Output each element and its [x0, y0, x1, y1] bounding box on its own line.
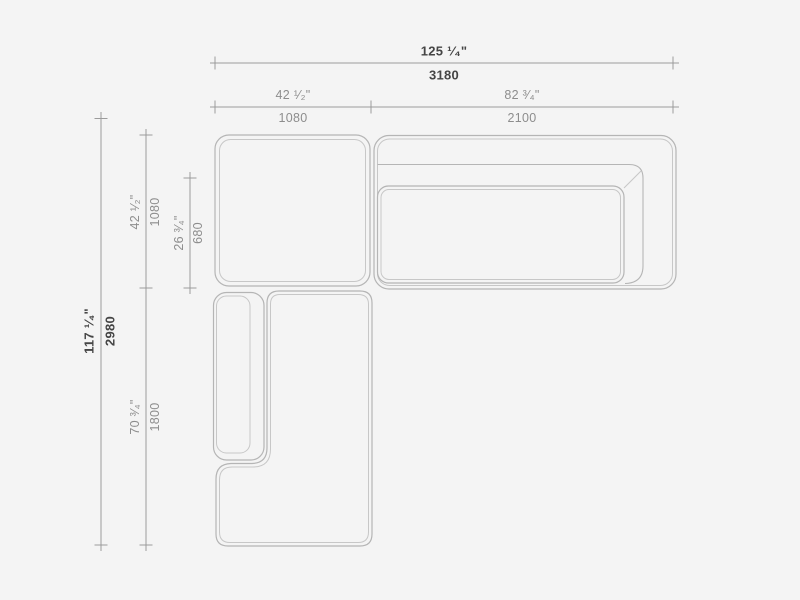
dim-overall-depth-inches: 117 ¹⁄₄": [83, 308, 96, 354]
dim-overall-width-inches: 125 ¹⁄₄": [421, 45, 468, 58]
corner-module: [215, 135, 370, 286]
sofa-dimension-drawing: 125 ¹⁄₄" 3180 42 ¹⁄₂" 1080 82 ³⁄₄" 2100 …: [0, 0, 800, 600]
dim-top-module-depth-inches: 42 ¹⁄₂": [129, 194, 142, 229]
dimension-lines: [95, 57, 680, 552]
corner-module-outline: [215, 135, 370, 286]
sofa-module: [374, 136, 676, 290]
dim-seat-depth-mm: 680: [192, 222, 205, 244]
dim-left-module-width-inches: 42 ¹⁄₂": [275, 89, 310, 102]
dim-top-module-depth-mm: 1080: [149, 197, 162, 226]
dim-left-module-width-mm: 1080: [278, 112, 307, 125]
dim-overall-width-mm: 3180: [429, 69, 459, 82]
chaise-armrest-outline: [214, 293, 265, 461]
dim-right-module-width-inches: 82 ³⁄₄": [504, 89, 539, 102]
dim-chaise-length-mm: 1800: [149, 402, 162, 431]
dim-seat-depth-inches: 26 ³⁄₄": [173, 215, 186, 250]
chaise-module: [214, 291, 373, 546]
sofa-plan-svg: [0, 0, 800, 600]
sofa-seat-cushion: [378, 186, 625, 283]
dim-chaise-length-inches: 70 ³⁄₄": [129, 399, 142, 434]
dim-right-module-width-mm: 2100: [507, 112, 536, 125]
dim-overall-depth-mm: 2980: [104, 316, 117, 346]
